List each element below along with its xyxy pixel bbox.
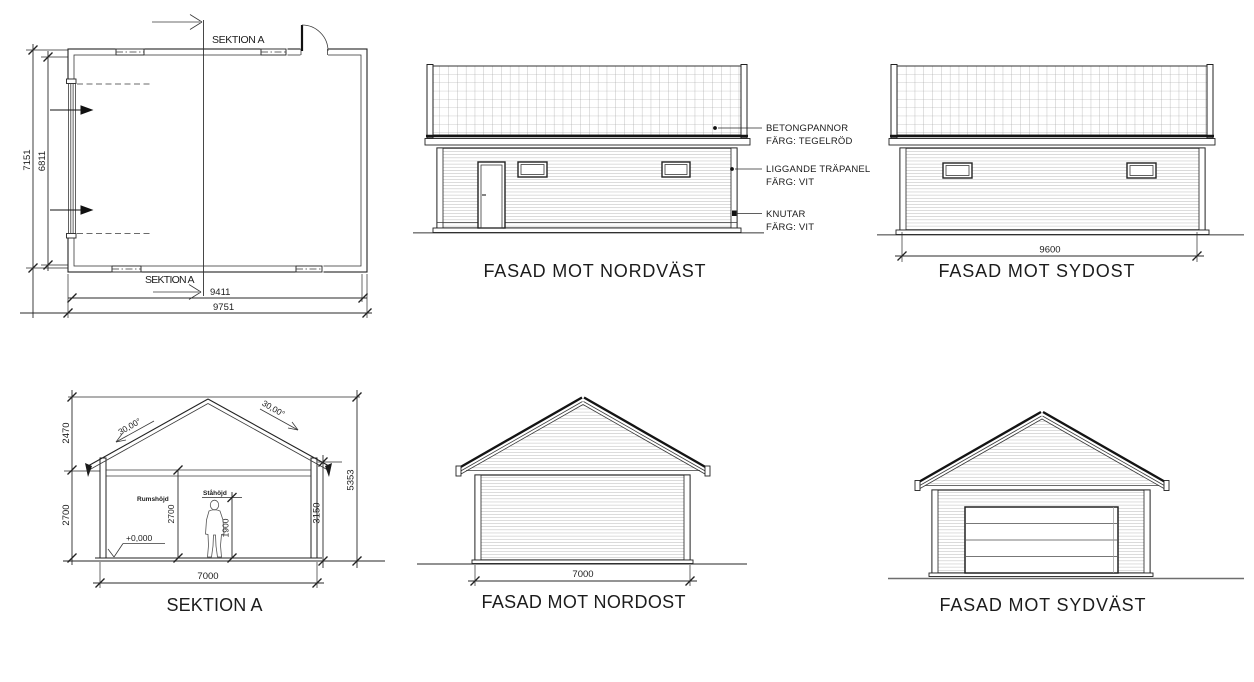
garage-door bbox=[965, 507, 1118, 573]
dim-width-value: 9600 bbox=[1039, 245, 1060, 256]
callout-panel-line2: FÄRG: VIT bbox=[766, 177, 814, 188]
plan-dim-heights: 7151 6811 bbox=[22, 44, 68, 318]
interior-annotations: Rumshöjd 2700 Ståhöjd 1900 +0,000 bbox=[108, 466, 242, 563]
callout-panel-line1: LIGGANDE TRÄPANEL bbox=[766, 164, 870, 175]
facade-sydost: 9600 FASAD MOT SYDOST bbox=[877, 65, 1244, 282]
entrance-door bbox=[478, 162, 505, 228]
window bbox=[1127, 163, 1156, 178]
bargeboard-right bbox=[1207, 65, 1213, 139]
window bbox=[662, 162, 690, 177]
section-label-bottom: SEKTION A bbox=[145, 274, 195, 286]
roof bbox=[425, 65, 750, 146]
fascia bbox=[425, 139, 750, 146]
facade-sydost-title: FASAD MOT SYDOST bbox=[939, 261, 1136, 281]
corner-board-right bbox=[1144, 490, 1150, 573]
roof-slopes bbox=[85, 399, 332, 477]
callout-roof-line1: BETONGPANNOR bbox=[766, 123, 848, 134]
corner-board-left bbox=[437, 148, 443, 228]
dim-wall-height: 2700 bbox=[61, 504, 72, 525]
plan-section-cut: SEKTION A SEKTION A bbox=[145, 15, 265, 300]
dim-roof-rise: 2470 bbox=[61, 422, 72, 443]
room-height-label: Rumshöjd bbox=[137, 496, 169, 503]
dim-width: 7000 bbox=[93, 562, 324, 588]
plan-door bbox=[301, 25, 329, 56]
bargeboard-left bbox=[891, 65, 897, 139]
roof-angle-left: 30,00° bbox=[116, 416, 142, 437]
level-marker-value: +0,000 bbox=[126, 533, 153, 543]
plan-dim-widths: 9411 9751 bbox=[20, 274, 372, 318]
eave-detail-right bbox=[325, 463, 332, 477]
wall-siding bbox=[900, 148, 1205, 230]
dim-right: 3150 5353 bbox=[312, 390, 362, 568]
dim-eave-height: 3150 bbox=[312, 502, 323, 523]
eave-detail-left bbox=[85, 463, 92, 477]
section-a-title: SEKTION A bbox=[167, 595, 264, 615]
facade-sydvast: FASAD MOT SYDVÄST bbox=[888, 412, 1244, 615]
door-swing-arc bbox=[302, 25, 328, 51]
dim-height-outer: 7151 bbox=[22, 149, 33, 170]
roof-tiles bbox=[897, 66, 1207, 135]
bargeboard-end-right bbox=[705, 466, 710, 476]
facade-nordvast-title: FASAD MOT NORDVÄST bbox=[484, 261, 707, 281]
bargeboard-left bbox=[427, 65, 433, 139]
gable-siding bbox=[927, 418, 1157, 485]
callout-knutar-line1: KNUTAR bbox=[766, 209, 806, 220]
facade-nordvast: BETONGPANNOR FÄRG: TEGELRÖD LIGGANDE TRÄ… bbox=[413, 65, 870, 282]
callout-roof-line2: FÄRG: TEGELRÖD bbox=[766, 136, 853, 147]
roof-angle-right: 30,00° bbox=[260, 398, 286, 419]
section-a: 30,00° 30,00° 2470 2700 3150 5353 bbox=[61, 390, 385, 615]
corner-board-right bbox=[684, 475, 690, 560]
dim-height-inner: 6811 bbox=[37, 151, 48, 171]
dim-width-value: 7000 bbox=[572, 569, 593, 580]
facade-nordost: 7000 FASAD MOT NORDOST bbox=[417, 398, 747, 613]
bargeboard-end-left bbox=[456, 466, 461, 476]
bargeboard-end-right bbox=[1164, 481, 1169, 491]
dim-width: 9600 bbox=[895, 232, 1204, 262]
gable-siding bbox=[468, 404, 698, 470]
fascia bbox=[889, 139, 1215, 146]
level-marker: +0,000 bbox=[108, 533, 165, 557]
room-height-value: 2700 bbox=[166, 504, 176, 523]
leader-dot bbox=[730, 167, 734, 171]
corner-board-right bbox=[1199, 148, 1205, 230]
corner-board-left bbox=[900, 148, 906, 230]
bargeboard-right bbox=[741, 65, 747, 139]
wall-siding bbox=[475, 475, 690, 560]
plan-window bbox=[296, 266, 324, 274]
plan-outer-wall bbox=[68, 49, 367, 272]
plan-garage-door bbox=[67, 79, 151, 238]
dim-width-value: 7000 bbox=[197, 571, 218, 582]
plan-window bbox=[116, 48, 145, 56]
plan-window bbox=[261, 48, 288, 56]
wall bbox=[896, 148, 1209, 235]
section-label-top: SEKTION A bbox=[212, 34, 265, 46]
plan-inner-wall bbox=[74, 55, 361, 266]
base-strip bbox=[472, 560, 693, 564]
roof-tiles bbox=[433, 66, 741, 135]
floor-plan: SEKTION A SEKTION A 7151 6811 bbox=[20, 15, 372, 319]
base-strip bbox=[896, 230, 1209, 235]
section-arrow-bottom bbox=[153, 285, 201, 300]
dim-total-height: 5353 bbox=[346, 469, 357, 490]
drawing-canvas: SEKTION A SEKTION A 7151 6811 bbox=[0, 0, 1254, 682]
leader-mark bbox=[732, 211, 737, 217]
window bbox=[943, 163, 972, 178]
corner-board-left bbox=[475, 475, 481, 560]
bargeboard-end-left bbox=[915, 481, 920, 491]
window bbox=[518, 162, 547, 177]
callout-knutar-line2: FÄRG: VIT bbox=[766, 222, 814, 233]
dim-width: 7000 bbox=[468, 565, 697, 586]
wall bbox=[472, 475, 693, 564]
section-arrow-top bbox=[152, 15, 202, 30]
facade-sydvast-title: FASAD MOT SYDVÄST bbox=[940, 595, 1147, 615]
wall-left bbox=[100, 458, 106, 558]
plan-window bbox=[112, 266, 142, 274]
architectural-drawing-sheet: SEKTION A SEKTION A 7151 6811 bbox=[0, 0, 1254, 682]
facade-nordost-title: FASAD MOT NORDOST bbox=[482, 592, 687, 612]
leader-dot bbox=[713, 126, 717, 130]
corner-board-left bbox=[932, 490, 938, 573]
stand-height-label: Ståhöjd bbox=[203, 489, 227, 497]
wall bbox=[433, 148, 741, 233]
roof bbox=[889, 65, 1215, 146]
dim-width-inner: 9411 bbox=[210, 287, 230, 298]
dim-width-outer: 9751 bbox=[213, 302, 234, 313]
